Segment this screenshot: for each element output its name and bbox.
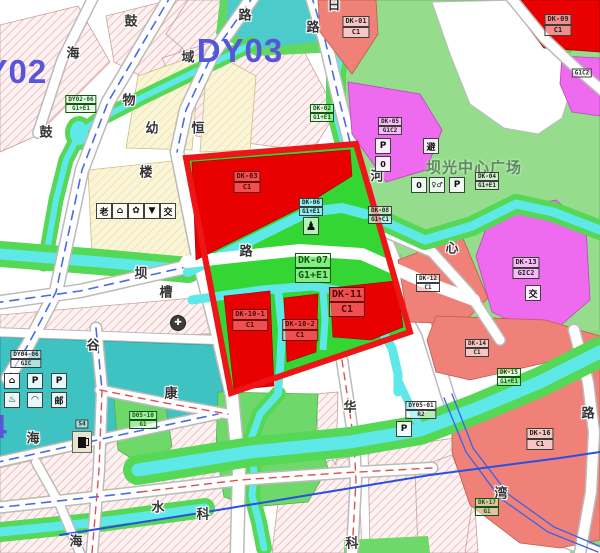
kiosk-icon: 0 (375, 156, 391, 172)
parcel-label-dk03[interactable]: DK-03 C1 (233, 171, 260, 193)
hospital-cross-icon: ✚ (170, 315, 186, 331)
block-channel-branch2 (323, 290, 325, 350)
road-char-shui: 水 (151, 497, 164, 516)
parcel-label-dk01[interactable]: DK-01 C1 (342, 16, 369, 38)
district-label-dy03: DY03 (197, 32, 284, 70)
toilet-icon: ♀♂ (429, 177, 445, 193)
parcel-label-magenta-ne[interactable]: G1C2 (572, 69, 592, 78)
parcel-label-dk10-2[interactable]: DK-10-2 C1 (282, 319, 318, 341)
road-char-xin: 心 (445, 238, 458, 257)
parking-icon: P (449, 177, 465, 193)
parcel-label-dk15[interactable]: DK-15 G1+E1 (497, 368, 521, 386)
road-char-lou: 楼 (139, 162, 152, 181)
parcel-label-dk04[interactable]: DK-04 G1+E1 (475, 172, 499, 190)
parking-icon: P (27, 373, 43, 389)
parcel-label-dk16[interactable]: DK-16 C1 (526, 428, 553, 450)
dome-icon: ◠ (27, 392, 43, 408)
gas-station-pump-icon (72, 431, 92, 453)
pump-nozzle (78, 437, 86, 448)
hot-spring-icon: ♨ (4, 392, 20, 408)
road-char-ri: 日 (327, 0, 340, 14)
parcel-label-dk14[interactable]: DK-14 C1 (465, 339, 489, 357)
road-char-kang: 康 (164, 383, 177, 402)
district-label-dy02: DY02 (0, 53, 47, 91)
kiosk-icon: 0 (411, 177, 427, 193)
parcel-label-dk13[interactable]: DK-13 GIC2 (512, 257, 539, 279)
road-char-ke1: 科 (196, 504, 209, 523)
parcel-label-d05-10[interactable]: D05-10 G1 (129, 411, 157, 429)
parcel-label-dk17[interactable]: DK-17 G1 (475, 498, 499, 516)
planning-map: DY02 DY03 4 坝光中心广场 鼓 海 域 物 鼓 幼 恒 楼 坝 槽 谷… (0, 0, 600, 553)
road-char-lu2: 路 (239, 241, 252, 260)
road-char-lu1: 路 (581, 403, 594, 422)
parcel-label-dy05-01[interactable]: DY05-01 R2 (405, 401, 436, 419)
road-char-yu: 域 (181, 47, 194, 66)
area-char-heng: 恒 (191, 118, 204, 137)
district-label-dy04: 4 (0, 408, 8, 446)
parcel-label-dk09[interactable]: DK-09 C1 (544, 14, 571, 36)
market-icon: ▼ (144, 203, 160, 219)
road-char-hai1: 海 (66, 43, 79, 62)
road-char-wu: 物 (122, 90, 135, 109)
parcel-label-dk08[interactable]: DK-08 G1+C1 (368, 206, 392, 224)
parcel-label-dk12[interactable]: DK-12 C1 (416, 274, 440, 292)
parcel-label-dk05[interactable]: DK-05 G1C2 (378, 117, 402, 135)
parcel-label-dy04-06[interactable]: DY04-06 GIC (10, 350, 41, 368)
parking-icon: P (375, 138, 391, 154)
parcel-label-dk06[interactable]: DK-06 G1+E1 (299, 198, 323, 216)
parcel-label-dk11[interactable]: DK-11 C1 (329, 287, 365, 317)
gas-station-label[interactable]: S4 (75, 420, 88, 429)
road-char-hua: 华 (343, 397, 356, 416)
parcel-label-dk10-1[interactable]: DK-10-1 C1 (232, 309, 268, 331)
road-char-gu3: 谷 (86, 335, 99, 354)
road-char-gu2: 鼓 (39, 122, 52, 141)
road-char-lu3: 路 (306, 17, 319, 36)
road-char-hai3: 海 (69, 531, 82, 550)
garden-icon: ✿ (128, 203, 144, 219)
home-icon: ⌂ (112, 203, 128, 219)
post-office-icon: 邮 (51, 392, 67, 408)
road-char-gu1: 鼓 (124, 11, 137, 30)
road-char-ba: 坝 (134, 263, 147, 282)
ev-charging-icon: P (51, 373, 67, 389)
elderly-care-icon: 老 (96, 203, 112, 219)
transit-icon: 交 (160, 203, 176, 219)
area-char-you: 幼 (145, 118, 158, 137)
transit-icon: 交 (525, 285, 541, 301)
road-char-hai2: 海 (26, 428, 39, 447)
statue-icon: ♟ (303, 217, 319, 235)
home-icon: ⌂ (4, 373, 20, 389)
shelter-icon: 避 (423, 138, 439, 154)
parcel-label-dk07[interactable]: DK-07 G1+E1 (295, 253, 331, 283)
road-char-cao: 槽 (159, 282, 172, 301)
road-char-ke2: 科 (345, 533, 358, 552)
parcel-label-dy02-06[interactable]: DY02-06 G1+E1 (65, 95, 96, 113)
parking-icon: P (396, 421, 412, 437)
road-char-lu4: 路 (238, 5, 251, 24)
parcel-label-dk02[interactable]: DK-02 G1+E1 (310, 104, 334, 122)
